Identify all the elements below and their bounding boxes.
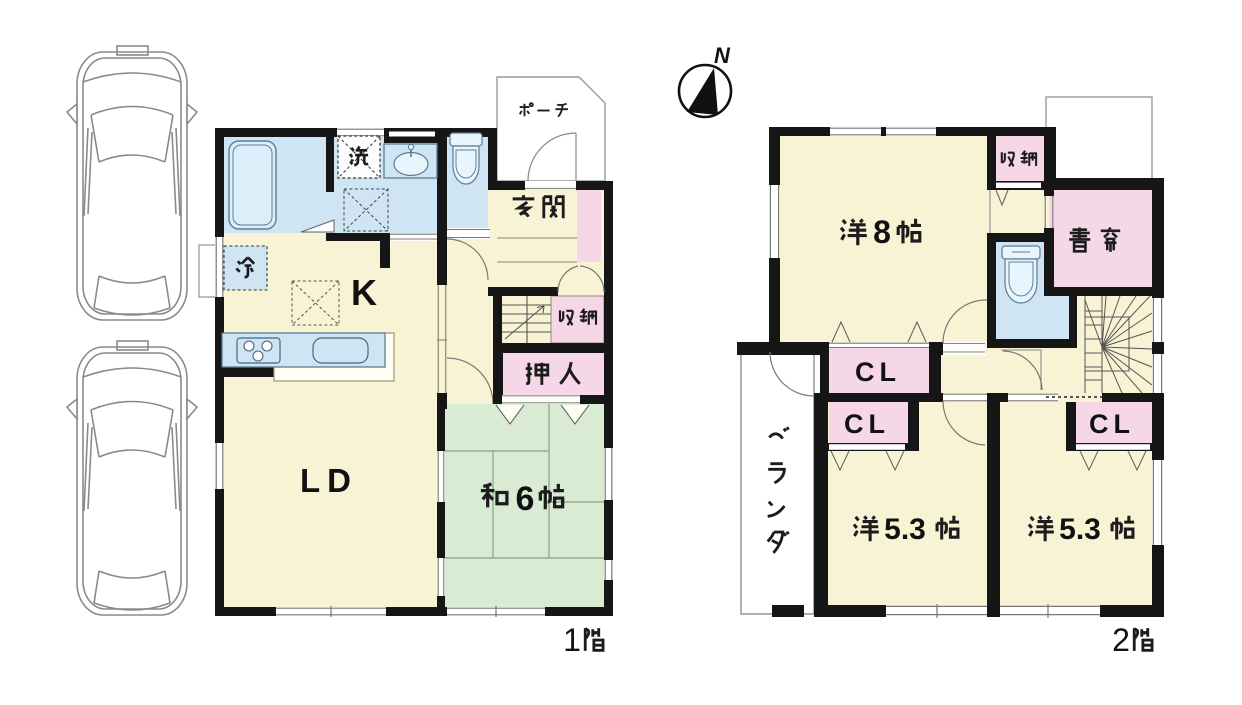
svg-text:CL: CL [844,409,890,439]
svg-text:CL: CL [1089,409,1135,439]
svg-text:LD: LD [300,462,358,499]
svg-text:1: 1 [563,622,581,658]
svg-text:6: 6 [516,480,535,518]
svg-text:5.3: 5.3 [1059,513,1101,546]
svg-text:5.3: 5.3 [884,513,926,546]
svg-text:CL: CL [855,357,901,387]
svg-text:8: 8 [873,214,891,250]
svg-text:2: 2 [1112,622,1130,658]
svg-text:N: N [714,43,731,68]
svg-text:K: K [351,272,377,313]
